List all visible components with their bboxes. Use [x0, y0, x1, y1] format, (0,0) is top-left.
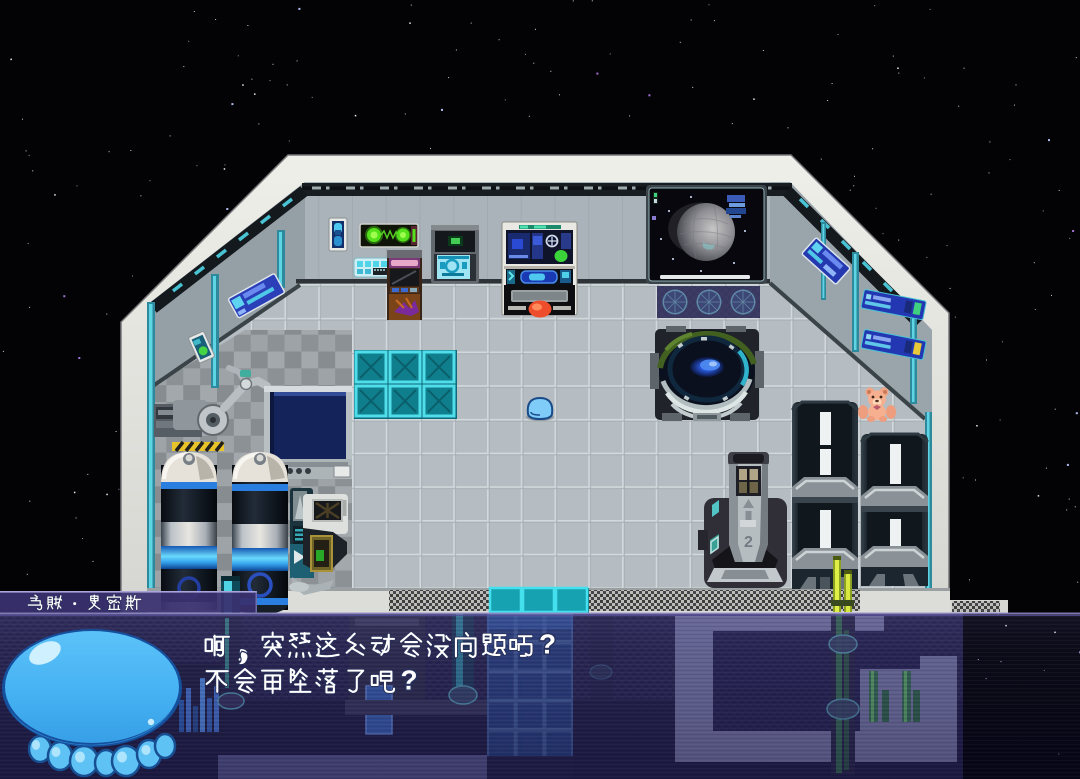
svg-text:?: ?: [539, 629, 556, 660]
svg-text:?: ?: [400, 665, 417, 696]
svg-text:2: 2: [744, 534, 753, 551]
